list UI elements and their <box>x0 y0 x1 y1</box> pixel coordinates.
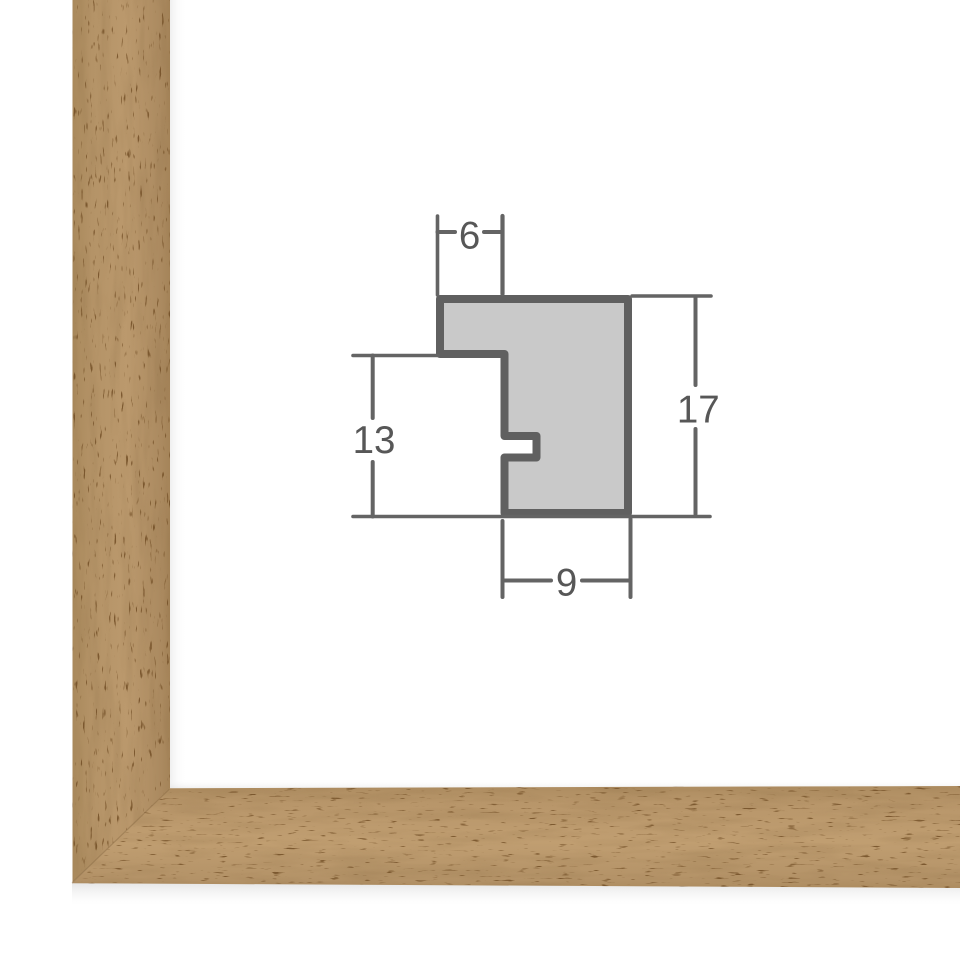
svg-text:9: 9 <box>556 562 577 605</box>
svg-text:6: 6 <box>459 215 480 258</box>
svg-text:13: 13 <box>353 419 396 462</box>
svg-text:17: 17 <box>677 389 720 432</box>
